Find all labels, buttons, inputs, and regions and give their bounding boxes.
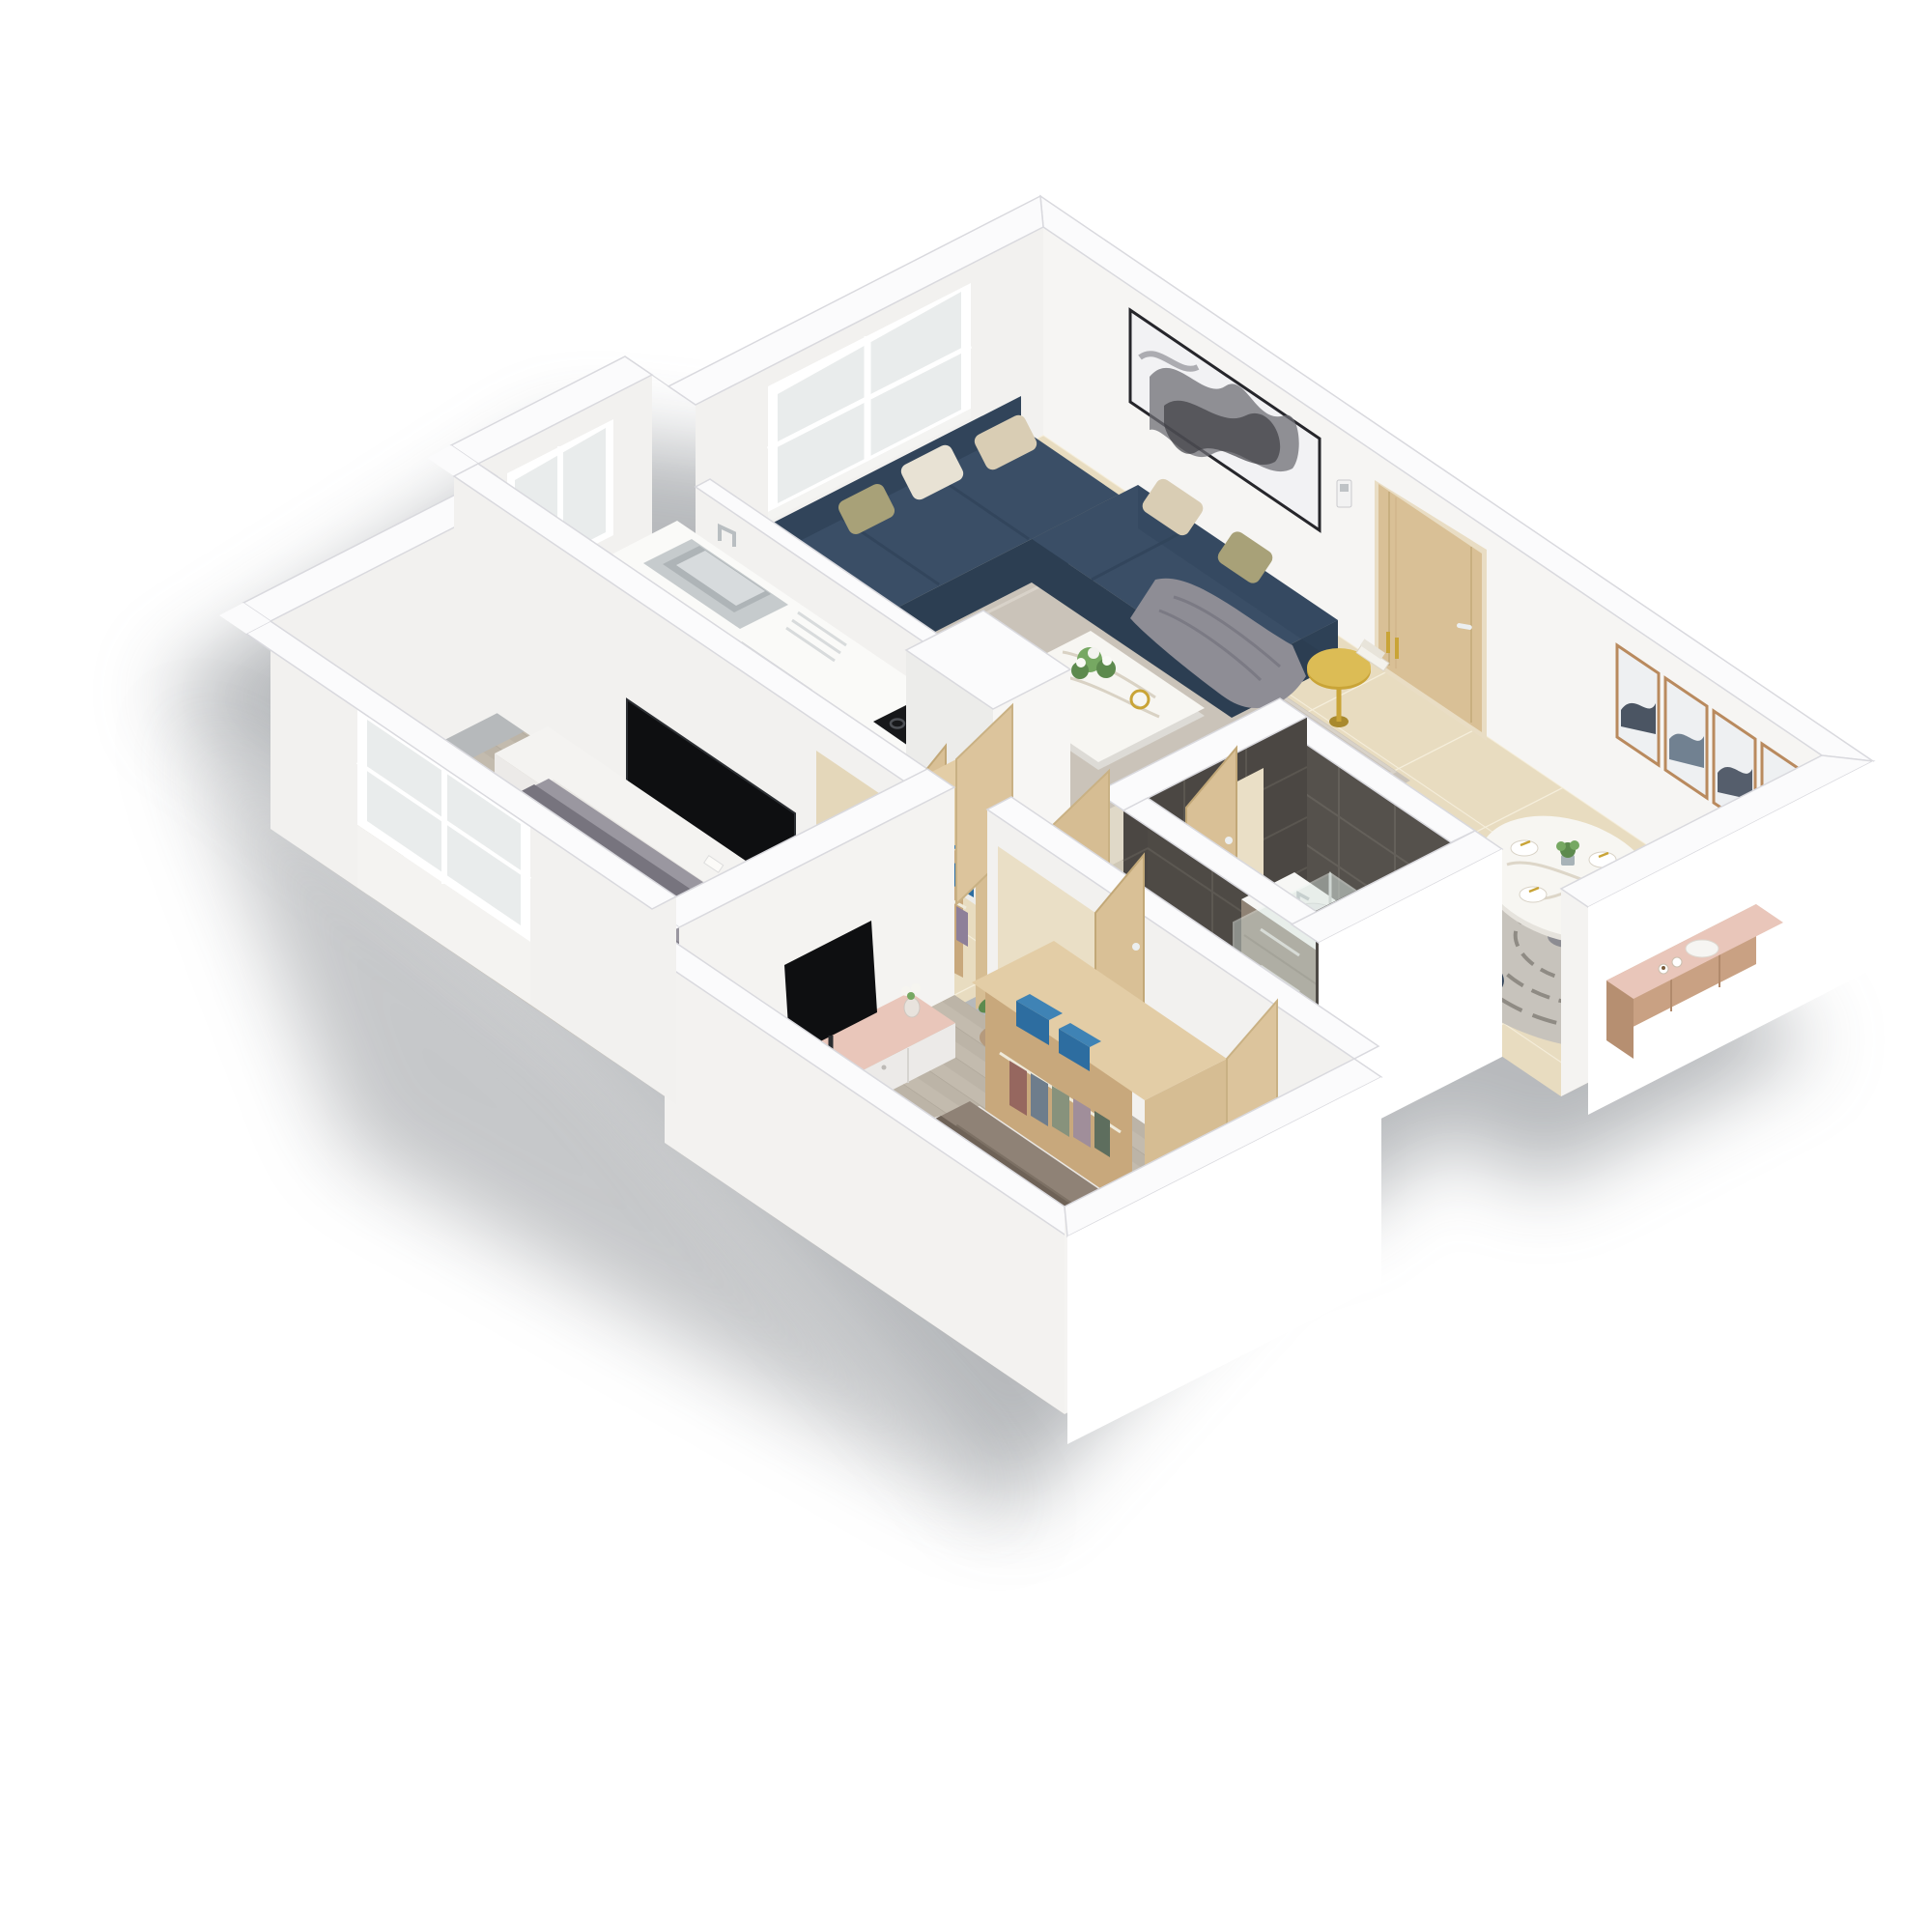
intercom bbox=[1337, 480, 1351, 507]
isometric-scene bbox=[0, 0, 1932, 1932]
floor-plan-render bbox=[0, 0, 1932, 1932]
